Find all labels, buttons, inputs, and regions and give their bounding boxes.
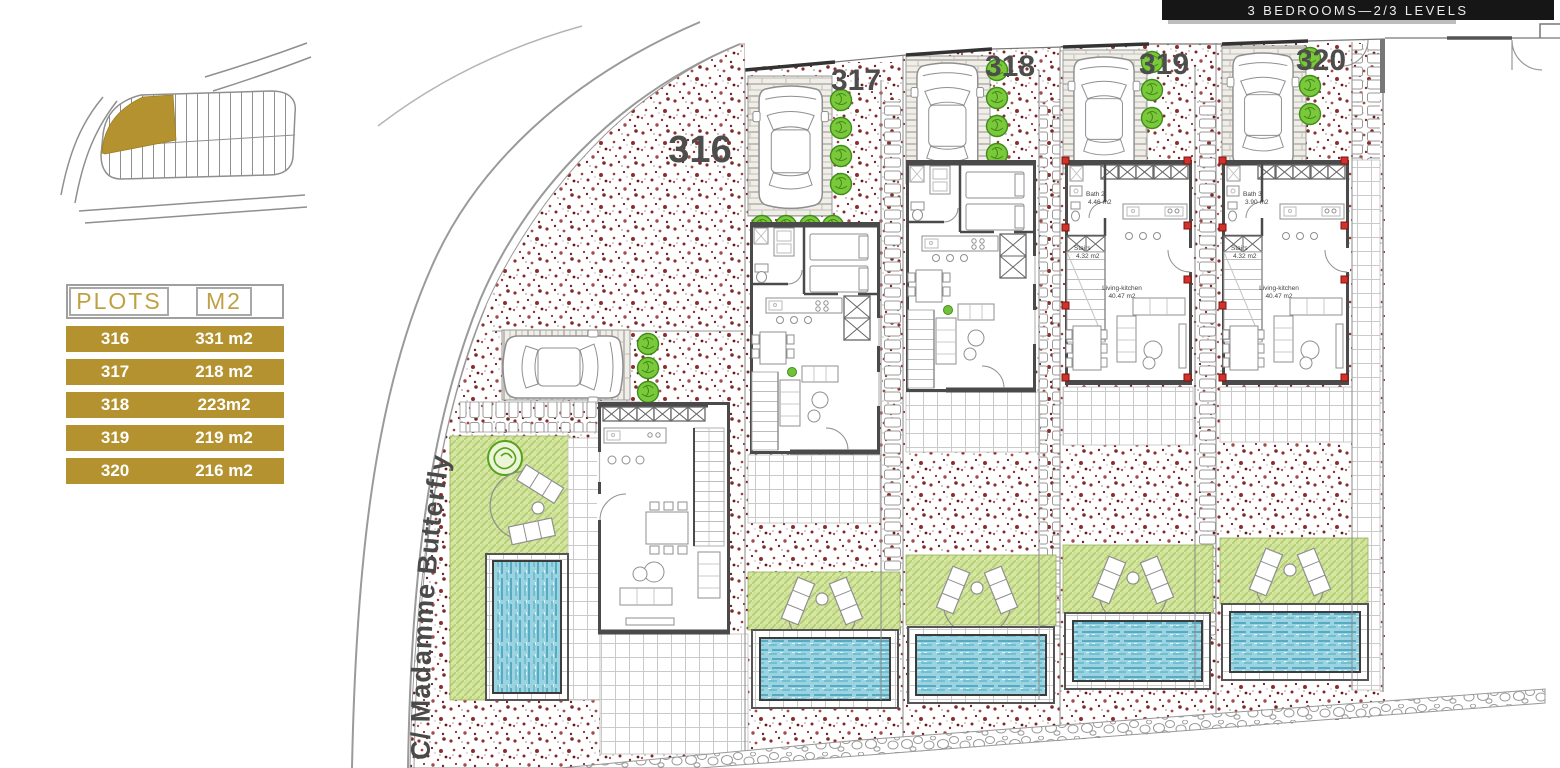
room-label-bath-320: Bath 3 <box>1243 191 1262 198</box>
site-plan-page: C/ Madamme Butterfly 316 317 318 319 320… <box>0 0 1560 768</box>
car-317 <box>753 86 828 208</box>
car-316 <box>503 330 623 404</box>
page-title-text: 3 BEDROOMS—2/3 LEVELS <box>1248 3 1469 18</box>
pool-317-water <box>760 638 890 700</box>
terrace-320 <box>1220 387 1352 442</box>
pool-316-water <box>493 561 561 693</box>
location-minimap <box>55 35 315 235</box>
legend-plot-area: 216 m2 <box>164 458 284 484</box>
room-label-living-320: Living-kitchen <box>1259 285 1299 292</box>
page-title: 3 BEDROOMS—2/3 LEVELS <box>1162 0 1554 20</box>
room-label-living-319: Living-kitchen <box>1102 285 1142 292</box>
legend-row-320: 320 216 m2 <box>66 458 284 484</box>
terrace-319 <box>1063 387 1193 445</box>
terrace-318 <box>906 392 1040 452</box>
legend-plot-area: 223m2 <box>164 392 284 418</box>
svg-text:4.46 m2: 4.46 m2 <box>1088 199 1112 206</box>
legend-col-plots: PLOTS <box>69 287 169 316</box>
plots-legend: PLOTS M2 316 331 m2 317 218 m2 318 223m2… <box>66 284 284 484</box>
svg-text:40.47 m2: 40.47 m2 <box>1108 293 1135 300</box>
legend-plot-area: 331 m2 <box>164 326 284 352</box>
legend-plot-number: 320 <box>66 458 164 484</box>
pool-319-water <box>1073 621 1202 681</box>
terrace-317 <box>748 455 880 523</box>
plot-label-317: 317 <box>831 64 881 97</box>
right-margin <box>1386 39 1560 689</box>
terrace-316 <box>568 438 600 700</box>
tree-icon <box>488 441 522 475</box>
legend-plot-area: 219 m2 <box>164 425 284 451</box>
svg-text:40.47 m2: 40.47 m2 <box>1265 293 1292 300</box>
legend-col-m2: M2 <box>196 287 252 316</box>
plot-label-316: 316 <box>668 129 731 171</box>
minimap-road <box>61 97 103 195</box>
pool-320-water <box>1230 612 1360 672</box>
house-320 <box>1219 157 1350 384</box>
house-316 <box>597 404 730 633</box>
house-318 <box>906 162 1038 391</box>
plot-label-320: 320 <box>1296 44 1346 77</box>
room-label-stairs-319: Stairs <box>1074 245 1091 252</box>
svg-text:3.90 m2: 3.90 m2 <box>1245 199 1269 206</box>
legend-plot-number: 319 <box>66 425 164 451</box>
plot-320 <box>1219 44 1380 690</box>
legend-plot-number: 317 <box>66 359 164 385</box>
legend-row-316: 316 331 m2 <box>66 326 284 352</box>
legend-row-319: 319 219 m2 <box>66 425 284 451</box>
car-320 <box>1227 53 1299 169</box>
house-317 <box>750 224 882 453</box>
legend-plot-number: 316 <box>66 326 164 352</box>
legend-header: PLOTS M2 <box>66 284 284 319</box>
legend-plot-number: 318 <box>66 392 164 418</box>
plot-label-318: 318 <box>985 50 1035 83</box>
car-319 <box>1068 57 1140 173</box>
legend-plot-area: 218 m2 <box>164 359 284 385</box>
room-label-bath-319: Bath 2 <box>1086 191 1105 198</box>
svg-text:4.32 m2: 4.32 m2 <box>1233 253 1257 260</box>
svg-text:4.32 m2: 4.32 m2 <box>1076 253 1100 260</box>
title-shadow <box>1168 20 1456 24</box>
house-319 <box>1062 157 1193 384</box>
legend-row-318: 318 223m2 <box>66 392 284 418</box>
plot-label-319: 319 <box>1139 48 1189 81</box>
pool-318-water <box>916 635 1046 695</box>
room-label-stairs-320: Stairs <box>1231 245 1248 252</box>
legend-row-317: 317 218 m2 <box>66 359 284 385</box>
